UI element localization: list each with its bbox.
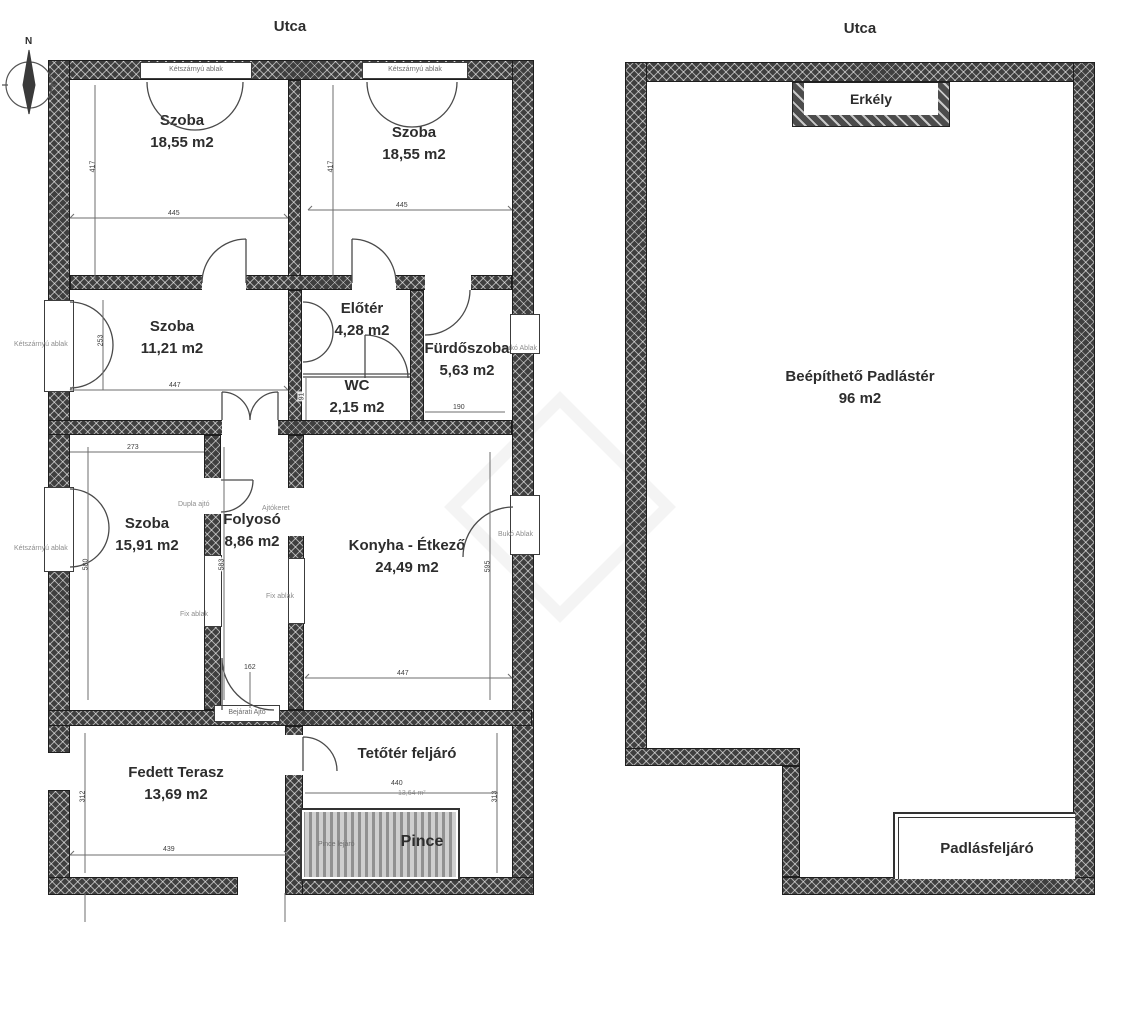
dim-konyha-width: 447 (396, 669, 410, 678)
room-folyoso-name: Folyosó (223, 509, 281, 532)
room-wc-name: WC (345, 375, 370, 398)
room-szoba2-area: 18,55 m2 (382, 144, 445, 167)
room-konyha-name: Konyha - Étkező (349, 535, 466, 558)
room-erkely: Erkély (804, 83, 938, 115)
dim-folyoso-door: 162 (243, 663, 257, 672)
door-opening-szoba3 (222, 420, 278, 435)
window-konyha (510, 495, 540, 555)
wall-house-bottom (48, 710, 532, 726)
dim-szoba1-width: 445 (167, 209, 181, 218)
room-terasz-name: Fedett Terasz (128, 762, 224, 785)
dim-terasz-width: 439 (162, 845, 176, 854)
door-opening-szoba2 (352, 275, 396, 290)
room-tetoter: Tetőtér feljáró (317, 744, 497, 764)
room-terasz: Fedett Terasz 13,69 m2 (86, 761, 266, 807)
room-eloter-name: Előtér (341, 298, 384, 321)
room-terasz-area: 13,69 m2 (144, 784, 207, 807)
cellar-stairs-label: Pince lejáró (318, 840, 355, 849)
attic-wall-right (1073, 62, 1095, 895)
dim-folyoso-height: 583 (217, 558, 226, 572)
room-padlaster-name: Beépíthető Padlástér (785, 366, 934, 389)
dim-terasz-height: 312 (78, 790, 87, 804)
attic-wall-left (625, 62, 647, 766)
dim-szoba2-height: 417 (326, 160, 335, 174)
room-padlaster: Beépíthető Padlástér 96 m2 (740, 364, 980, 412)
dim-szoba3-width: 447 (168, 381, 182, 390)
room-eloter-area: 4,28 m2 (334, 320, 389, 343)
wall-terrace-bottom (48, 877, 238, 895)
room-tetoter-name: Tetőtér feljáró (358, 743, 457, 766)
room-szoba3-name: Szoba (150, 316, 194, 339)
dim-furdo-width: 190 (452, 403, 466, 412)
door-opening-terasz-tetoter (285, 735, 303, 775)
fix-window-label-1: Fix ablak (266, 592, 294, 601)
room-szoba1-area: 18,55 m2 (150, 132, 213, 155)
compass-needle (23, 50, 35, 114)
room-wc-area: 2,15 m2 (329, 397, 384, 420)
street-label-left: Utca (240, 18, 340, 35)
room-folyoso-area: 8,86 m2 (224, 531, 279, 554)
door-opening-furdoszoba (425, 275, 471, 290)
room-wc: WC 2,15 m2 (297, 377, 417, 417)
attic-wall-bottom (782, 877, 1095, 895)
window-szoba4 (44, 487, 74, 572)
room-pince: Pince (390, 832, 454, 852)
room-furdoszoba: Fürdőszoba 5,63 m2 (405, 338, 529, 382)
room-konyha: Konyha - Étkező 24,49 m2 (307, 534, 507, 580)
fix-window-konyha (288, 558, 305, 624)
room-szoba4-name: Szoba (125, 513, 169, 536)
room-folyoso: Folyosó 8,86 m2 (192, 508, 312, 554)
wall-left-upper (48, 60, 70, 753)
attic-wall-notch-vertical (782, 766, 800, 877)
dim-wc-height: 91 (297, 392, 306, 402)
dim-konyha-height: 595 (483, 560, 492, 574)
room-szoba1-name: Szoba (160, 110, 204, 133)
dim-tetoter-width: 440 (390, 779, 404, 788)
dim-szoba1-height: 417 (88, 160, 97, 174)
window-label-szoba4: Kétszárnyú ablak (14, 544, 68, 553)
room-padlaster-area: 96 m2 (839, 388, 882, 411)
window-label-szoba3: Kétszárnyú ablak (14, 340, 68, 349)
dim-szoba4-top: 273 (126, 443, 140, 452)
room-furdoszoba-area: 5,63 m2 (439, 360, 494, 383)
dim-szoba3-window: 253 (96, 334, 105, 348)
room-szoba1: Szoba 18,55 m2 (112, 110, 252, 154)
room-pince-name: Pince (401, 830, 444, 854)
door-opening-szoba1 (202, 275, 246, 290)
room-eloter: Előtér 4,28 m2 (302, 298, 422, 342)
balcony: Erkély (792, 82, 950, 127)
floor-plan-canvas: Utca Utca Kétszárnyú ablak Kétszárnyú ab… (0, 0, 1132, 1024)
room-erkely-name: Erkély (850, 91, 892, 107)
dim-tetoter-height: 313 (490, 790, 499, 804)
room-szoba2-name: Szoba (392, 122, 436, 145)
room-konyha-area: 24,49 m2 (375, 557, 438, 580)
attic-wall-top (625, 62, 1095, 82)
room-szoba3-area: 11,21 m2 (141, 338, 204, 361)
room-szoba2: Szoba 18,55 m2 (344, 122, 484, 166)
room-padlasfeljaro-name: Padlásfeljáró (940, 840, 1033, 857)
entry-door-label: Bejárati Ajtó (214, 705, 280, 722)
attic-stairs-box: Padlásfeljáró (893, 812, 1075, 879)
wall-under-middle-band (48, 420, 512, 435)
dim-szoba4-height: 580 (81, 558, 90, 572)
room-padlasfeljaro: Padlásfeljáró (898, 817, 1075, 879)
window-label-top-left: Kétszárnyú ablak (140, 62, 252, 79)
wall-right (512, 60, 534, 895)
tetoter-area-label: 13,64 m² (398, 789, 426, 798)
street-label-right: Utca (810, 20, 910, 37)
attic-wall-notch-horizontal (625, 748, 800, 766)
dim-szoba2-width: 445 (395, 201, 409, 210)
room-szoba4-area: 15,91 m2 (115, 535, 178, 558)
compass-north-label: N (25, 36, 32, 47)
wall-between-szoba1-szoba2 (288, 80, 301, 282)
fix-window-label-2: Fix ablak (180, 610, 208, 619)
room-furdoszoba-name: Fürdőszoba (425, 338, 510, 361)
window-label-top-right: Kétszárnyú ablak (362, 62, 468, 79)
room-szoba3: Szoba 11,21 m2 (102, 316, 242, 360)
